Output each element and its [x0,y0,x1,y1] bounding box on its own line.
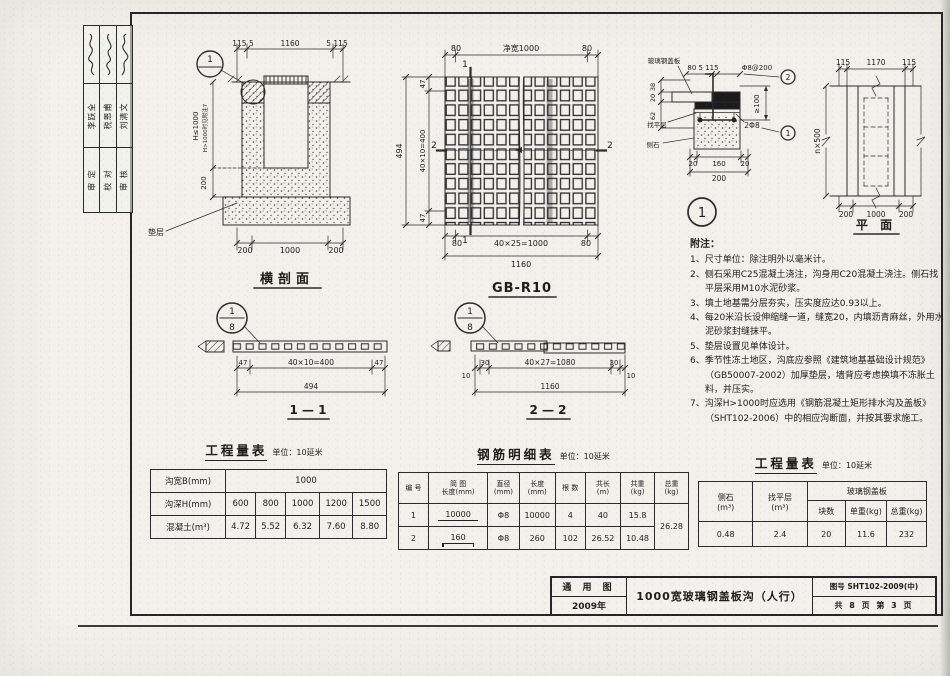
table-row: 0.48 2.4 20 11.6 232 [699,522,927,547]
detail-bubble-label: 8 [467,323,473,333]
rebar-sketch-cell: 160 [428,527,487,550]
cell: 4.72 [226,516,256,539]
cell: 4 [555,504,585,527]
col-header: 侧石 (m³) [699,482,753,522]
row-header: 混凝土(m³) [151,516,226,539]
cell: 20 [807,522,845,547]
dim-label: 80 [452,239,462,248]
section-mark: 2 [431,141,437,151]
dim-label: 1160 [540,382,559,391]
dim-label: 115 [902,58,917,67]
cell: 600 [226,493,256,516]
dim-label: 30 [610,359,619,367]
table-row: 沟宽B(mm) 1000 [151,470,387,493]
table-row: 2 160 Φ8 260 102 26.52 10.48 [399,527,689,550]
drawing-year: 2009年 [552,597,626,615]
rebar-label: 2Φ8 [744,121,760,130]
dim-label: 200 [712,174,727,183]
dim-label: 47 [239,359,248,367]
dim-label: 40×25=1000 [494,239,548,248]
table-header-row: 侧石 (m³) 找平层 (m³) 玻璃钢盖板 [699,482,927,501]
rebar-label: Φ8@200 [742,64,772,72]
note-item: 3、填土地基需分层夯实，压实度应达0.93以上。 [690,297,944,311]
drawing-sheet: 李跃全 审 定 税恩甫 校 对 刘清文 审 核 [0,0,950,676]
cell: 26.28 [655,504,689,550]
drawing-title: 横剖面 [260,271,314,287]
dim-label: 200 [200,176,208,189]
note-item: 5、垫层设置见单体设计。 [690,340,944,354]
quantity-table: 沟宽B(mm) 1000 沟深H(mm) 600 800 1000 1200 1… [150,469,387,539]
drawing-title: 平 面 [856,218,896,232]
title-block-type: 通 用 图 2009年 [552,578,627,614]
table-title: 钢筋明细表 [477,444,555,465]
cell: 5.52 [256,516,286,539]
quantity-table-section: 工程量表 单位：10延米 沟宽B(mm) 1000 沟深H(mm) 600 80… [140,440,388,539]
note-item: 4、每20米沿长设伸缩缝一道，缝宽20，内填沥青麻丝，外用水泥砂浆封缝抹平。 [690,311,944,340]
col-header: 总重 (kg) [655,473,689,504]
detail-bubble-label: 1 [698,206,706,221]
cushion-label: 垫层 [148,227,164,237]
col-header: 单重(kg) [845,501,886,522]
cell: 232 [886,522,926,547]
dim-label: 80 5 115 [687,64,718,72]
dim-label: 494 [395,143,404,158]
notes-block: 附注： 1、尺寸单位：除注明外以毫米计。 2、侧石采用C25混凝土浇注，沟身用C… [690,238,944,426]
section-mark: 2 [607,141,613,151]
dim-label: 38 [649,83,657,91]
dim-label: 47 [375,359,384,367]
table-title: 工程量表 [755,453,817,474]
col-header: 共长 (m) [585,473,620,504]
dim-label: n×500 [813,128,822,154]
dim-label: 80 [581,239,591,248]
bar-sketch: 10000 [438,510,477,521]
cell: 10.48 [621,527,655,550]
cell: 2.4 [753,522,807,547]
dim-label: 20 [741,160,750,168]
cell: 1500 [353,493,387,516]
dim-label: 200 [839,210,854,219]
dim-label: 1160 [511,260,531,269]
col-header: 找平层 (m³) [753,482,807,522]
cell: Φ8 [488,504,519,527]
cell: 800 [256,493,286,516]
table-unit: 单位：10延米 [272,447,322,458]
dim-label: 1000 [280,246,300,255]
table-title: 工程量表 [205,440,267,461]
grid-plate-drawing: 80 净宽1000 80 494 47 40×10=400 47 80 40×2… [395,43,613,297]
dim-label: 200 [899,210,914,219]
cell: 10000 [519,504,555,527]
table-row: 混凝土(m³) 4.72 5.52 6.32 7.60 8.80 [151,516,387,539]
table-row: 沟深H(mm) 600 800 1000 1200 1500 [151,493,387,516]
cell: 26.52 [585,527,620,550]
dim-label: 47 [419,80,427,89]
row-header: 沟深H(mm) [151,493,226,516]
dim-label: 200 [237,246,252,255]
cell: 11.6 [845,522,886,547]
rebar-mark-bubble: 1 [786,129,791,138]
drawing-title: GB-R10 [492,281,552,296]
cell: 1200 [319,493,353,516]
detail-drawing: 玻璃钢盖板 80 5 115 Φ8@200 2 ≥100 2Φ8 1 38 20… [647,56,796,226]
dim-label: 20 [689,160,698,168]
dim-label: 115 [836,58,851,67]
rebar-table: 编 号 简 图 长度(mm) 直径 (mm) 长度 (mm) 根 数 共长 (m… [398,472,689,550]
title-block-number: 图号 SHT102-2009(中) 共 8 页 第 3 页 [812,578,935,614]
section-1-1-drawing: 1 8 47 40×10=400 47 494 1 — 1 [198,303,388,419]
page-indicator: 共 8 页 第 3 页 [813,597,935,615]
cell: 6.32 [286,516,320,539]
drawing-title: 1 — 1 [289,403,326,417]
title-block: 通 用 图 2009年 1000宽玻璃钢盖板沟（人行） 图号 SHT102-20… [550,576,937,616]
rebar-table-section: 钢筋明细表 单位：10延米 编 号 简 图 长度(mm) 直径 (mm) 长度 … [398,444,689,550]
dim-label: 10 [462,372,471,380]
cell: 15.8 [621,504,655,527]
dim-label: 160 [712,160,725,168]
detail-bubble-label: 1 [207,55,213,65]
table-header-row: 编 号 简 图 长度(mm) 直径 (mm) 长度 (mm) 根 数 共长 (m… [399,473,689,504]
col-group-header: 玻璃钢盖板 [807,482,926,501]
plate-label: 玻璃钢盖板 [648,56,681,65]
cell: 1000 [286,493,320,516]
dim-label: 80 [582,44,592,53]
notes-title: 附注： [690,238,944,252]
dim-label: 40×27=1080 [525,358,576,367]
quantity-table-right: 侧石 (m³) 找平层 (m³) 玻璃钢盖板 块数 单重(kg) 总重(kg) … [698,481,927,547]
cell: 8.80 [353,516,387,539]
dim-label: 80 [451,44,461,53]
dim-label: H>1000时见附注7 [201,103,209,152]
cell: 40 [585,504,620,527]
col-header: 根 数 [555,473,585,504]
drawing-type: 通 用 图 [552,578,626,597]
rebar-mark-bubble: 2 [786,73,791,82]
row-header: 沟宽B(mm) [151,470,226,493]
detail-bubble-label: 8 [229,323,235,333]
plan-drawing: 115 1170 115 n×500 200 1000 200 平 面 [813,58,925,234]
dim-label: 40×10=400 [419,130,427,173]
leveling-label: 找平层 [647,120,667,129]
drawing-title: 2 — 2 [529,403,566,417]
dim-label: 20 [649,94,657,102]
bar-sketch: 160 [443,533,472,544]
note-item: 7、沟深H>1000时应选用《钢筋混凝土矩形排水沟及盖板》（SHT102-200… [690,397,944,426]
detail-bubble-label: 1 [229,307,235,317]
note-item: 2、侧石采用C25混凝土浇注，沟身用C20混凝土浇注。侧石找平层采用M10水泥砂… [690,268,944,297]
drawing-name: 1000宽玻璃钢盖板沟（人行） [627,578,812,614]
dim-label: 200 [328,246,343,255]
note-item: 1、尺寸单位：除注明外以毫米计。 [690,253,944,267]
col-header: 长度 (mm) [519,473,555,504]
cell: 2 [399,527,429,550]
col-header: 块数 [807,501,845,522]
cell: 0.48 [699,522,753,547]
cell: 1000 [226,470,387,493]
dim-label: 净宽1000 [503,43,539,53]
dim-label: 1170 [866,58,885,67]
dim-label: 40×10=400 [288,358,334,367]
note-item: 6、季节性冻土地区，沟底应参照《建筑地基基础设计规范》（GB50007-2002… [690,354,944,397]
dim-label: 10 [627,372,636,380]
detail-bubble-label: 1 [467,307,473,317]
dim-label: 115 5 [232,39,254,48]
section-mark: 1 [462,60,468,70]
quantity-table-right-section: 工程量表 单位：10延米 侧石 (m³) 找平层 (m³) 玻璃钢盖板 块数 单… [698,453,929,547]
section-2-2-drawing: 1 8 10 30 40×27=1080 30 10 1160 2 — 2 [431,303,635,419]
cell: 7.60 [319,516,353,539]
curb-label: 侧石 [647,140,661,149]
dim-label: 494 [304,382,319,391]
drawing-number: 图号 SHT102-2009(中) [813,578,935,597]
col-header: 编 号 [399,473,429,504]
rebar-sketch-cell: 10000 [428,504,487,527]
col-header: 总重(kg) [886,501,926,522]
dim-label: H≤1000 [192,112,200,141]
dim-label: 62 [649,112,657,120]
dim-label: 1160 [280,39,299,48]
cell: 102 [555,527,585,550]
table-unit: 单位：10延米 [822,460,872,471]
table-row: 1 10000 Φ8 10000 4 40 15.8 26.28 [399,504,689,527]
cross-section-drawing: 1 115 5 1160 5 115 H≤1000 H>1000时见附注7 20… [148,39,350,288]
table-unit: 单位：10延米 [560,451,610,462]
dim-label: ≥100 [753,94,761,113]
col-header: 直径 (mm) [488,473,519,504]
dim-label: 47 [419,214,427,223]
col-header: 简 图 长度(mm) [428,473,487,504]
section-mark: 1 [462,236,468,246]
col-header: 共重 (kg) [621,473,655,504]
cell: 1 [399,504,429,527]
dim-label: 30 [481,359,490,367]
cell: 260 [519,527,555,550]
dim-label: 5 115 [326,39,348,48]
cell: Φ8 [488,527,519,550]
